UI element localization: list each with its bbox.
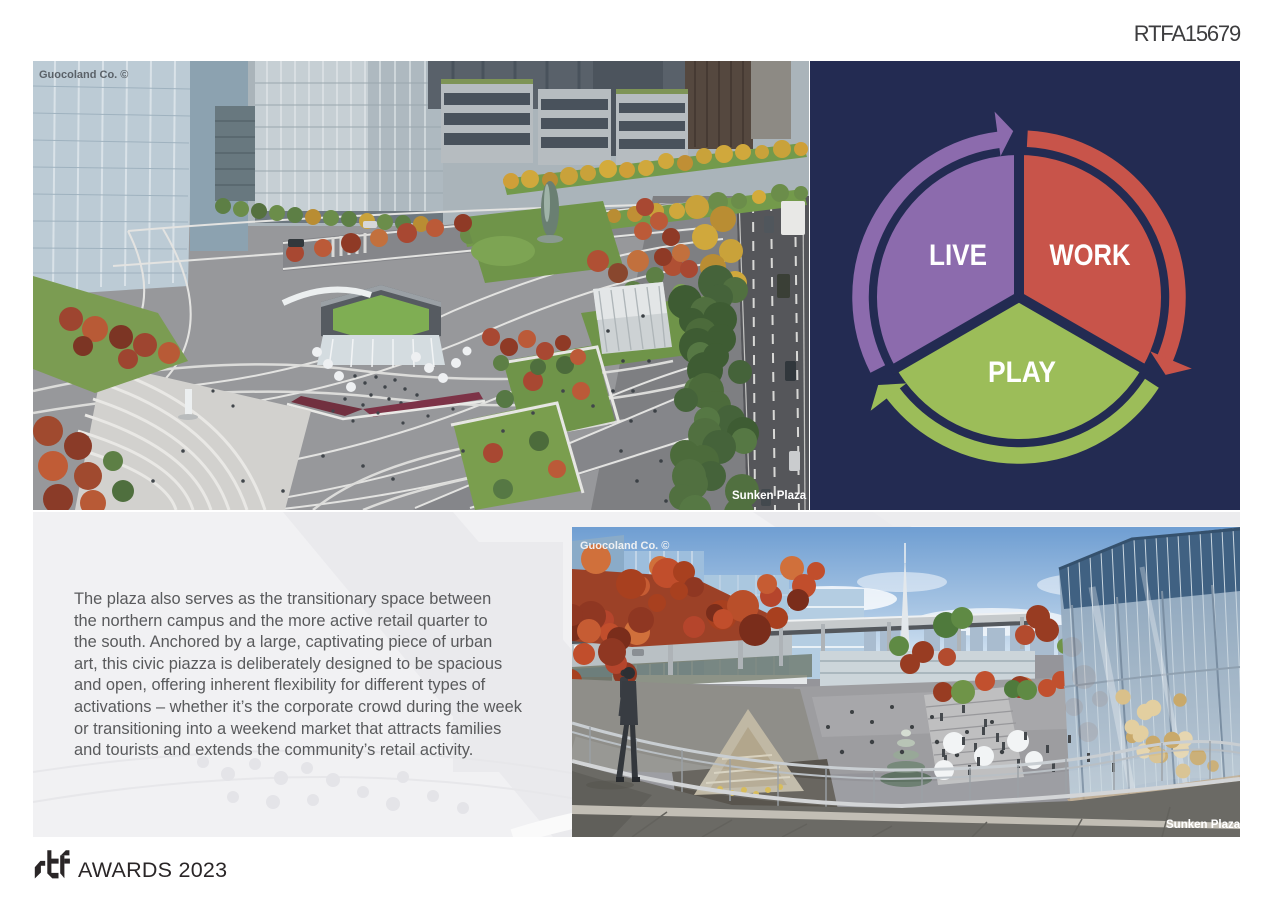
svg-text:Sunken Plaza: Sunken Plaza xyxy=(1166,819,1240,831)
svg-text:LIVE: LIVE xyxy=(929,239,987,272)
svg-text:AWARDS 2023: AWARDS 2023 xyxy=(78,858,227,882)
svg-text:Guocoland Co. ©: Guocoland Co. © xyxy=(39,69,128,81)
svg-text:WORK: WORK xyxy=(1050,239,1131,272)
svg-text:Guocoland Co. ©: Guocoland Co. © xyxy=(580,540,669,552)
svg-text:Sunken Plaza: Sunken Plaza xyxy=(732,490,807,502)
svg-text:PLAY: PLAY xyxy=(988,356,1056,389)
